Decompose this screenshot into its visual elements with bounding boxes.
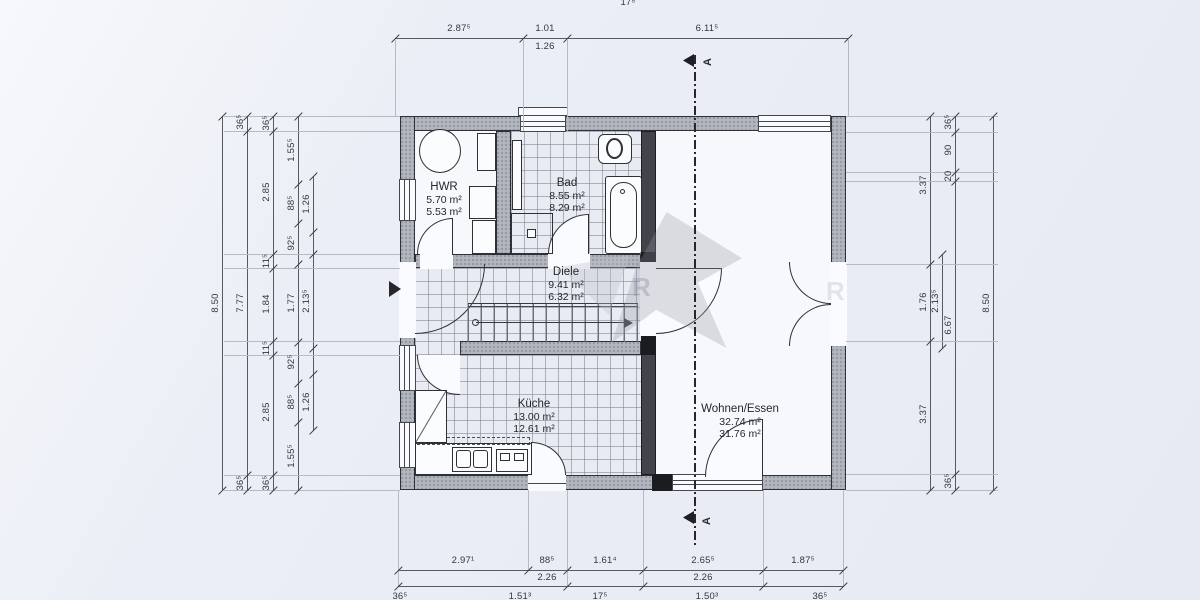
washing-machine: [419, 129, 461, 173]
dimension-line: [273, 116, 274, 490]
extension-line: [224, 490, 400, 491]
extension-line: [846, 172, 998, 173]
dimension-line: [398, 570, 843, 571]
room-name: HWR: [426, 181, 462, 194]
entrance-door-gap: [399, 262, 416, 338]
dim-label: 11⁵: [262, 254, 272, 268]
stair-top-line: [468, 306, 638, 307]
dim-label: 1.50³: [696, 592, 719, 600]
dim-label: 92⁵: [287, 235, 297, 250]
extension-line: [846, 474, 998, 475]
window-frame-line: [404, 345, 405, 391]
dim-label: 36⁵: [392, 592, 407, 600]
dimension-line: [247, 116, 248, 490]
window-frame-line: [672, 484, 763, 485]
dim-label: 1.01: [535, 24, 554, 34]
sink-bowl-right: [473, 450, 488, 468]
extension-line: [846, 132, 998, 133]
dim-label: 2.13⁵: [302, 289, 312, 312]
dim-label: 2.13⁵: [931, 289, 941, 312]
section-flag-bottom: [683, 511, 694, 524]
dim-label: 36⁵: [262, 475, 272, 490]
room-area-net: 5.53 m²: [426, 206, 462, 218]
window-left-kueche-1: [399, 345, 416, 391]
window-frame-line: [409, 179, 410, 221]
section-label-bottom: A: [701, 517, 713, 525]
dimension-line: [398, 586, 843, 587]
section-flag-top: [683, 54, 694, 67]
wall-hwr-bad: [496, 131, 511, 254]
dim-label: 2.87⁵: [447, 24, 470, 34]
extension-line: [848, 40, 849, 116]
sink-bowl-left: [456, 450, 471, 468]
extension-line: [224, 268, 400, 269]
hwr-shelf-1: [477, 133, 496, 171]
door-threshold-line: [528, 483, 566, 484]
dim-label: 90: [944, 145, 954, 156]
shower-drain: [527, 229, 536, 238]
stove-burner-1: [500, 453, 510, 461]
dim-label: 6.11⁵: [696, 24, 719, 34]
french-door-gap-right: [830, 262, 847, 346]
room-name: Diele: [548, 266, 584, 279]
dim-label: 1.84: [262, 294, 272, 313]
dim-label: 17⁵: [592, 592, 607, 600]
floor-plan-page: R R A A HWR 5.70 m² 5.53 m² Bad 8.55 m² …: [0, 0, 1200, 600]
window-frame-line: [672, 480, 763, 481]
window-frame-line: [409, 422, 410, 468]
bathtub-drain: [620, 189, 625, 194]
dim-label: 7.77: [236, 293, 246, 312]
bad-cabinet: [512, 140, 522, 210]
room-area-net: 8.29 m²: [549, 202, 585, 214]
room-label-hwr: HWR 5.70 m² 5.53 m²: [426, 181, 462, 218]
room-name: Bad: [549, 177, 585, 190]
dim-label: 1.26: [535, 42, 554, 52]
room-area-gross: 32.74 m²: [701, 416, 779, 428]
hwr-shelf-2: [469, 186, 496, 219]
dimension-line: [298, 116, 299, 490]
room-area-gross: 13.00 m²: [513, 411, 554, 423]
wall-stub-lower: [641, 336, 656, 355]
dim-label: 36⁵: [236, 114, 246, 129]
dim-label: 6.67: [944, 315, 954, 334]
extension-line: [224, 131, 400, 132]
dim-label: 88⁵: [539, 556, 554, 566]
room-area-net: 31.76 m²: [701, 428, 779, 440]
dim-label: 36⁵: [944, 473, 954, 488]
extension-line: [567, 40, 568, 131]
room-area-gross: 8.55 m²: [549, 190, 585, 202]
room-name: Küche: [513, 398, 554, 411]
dim-label: 36⁵: [262, 115, 272, 130]
room-label-diele: Diele 9.41 m² 6.32 m²: [548, 266, 584, 303]
dim-label: 36⁵: [236, 475, 246, 490]
dim-label: 1.26: [302, 194, 312, 213]
window-frame-line: [520, 121, 566, 122]
toilet-bowl: [606, 138, 623, 159]
room-area-gross: 5.70 m²: [426, 194, 462, 206]
extension-line: [224, 341, 400, 342]
window-frame-line: [520, 126, 566, 127]
stair-walk-start-dot: [472, 319, 479, 326]
window-frame-line: [404, 422, 405, 468]
extension-line: [528, 490, 529, 570]
room-label-kueche: Küche 13.00 m² 12.61 m²: [513, 398, 554, 435]
dim-label: 88⁵: [287, 394, 297, 409]
dim-label: 1.55⁵: [287, 138, 297, 161]
stove-burner-2: [514, 453, 524, 461]
dim-label: 1.77: [287, 293, 297, 312]
room-label-wohnen: Wohnen/Essen 32.74 m² 31.76 m²: [701, 403, 779, 440]
window-sill-top: [518, 107, 568, 116]
window-frame-line: [758, 126, 831, 127]
extension-line: [523, 40, 524, 131]
dim-label: 11⁵: [262, 341, 272, 355]
dim-label: 17⁵: [620, 0, 635, 8]
window-top-wohnen: [758, 115, 831, 132]
dim-label: 2.26: [537, 573, 556, 583]
dim-label: 2.65⁵: [691, 556, 714, 566]
dim-label: 88⁵: [287, 195, 297, 210]
dim-label: 1.76: [919, 292, 929, 311]
window-left-kueche-2: [399, 422, 416, 468]
room-name: Wohnen/Essen: [701, 403, 779, 416]
dim-label: 8.50: [211, 293, 221, 312]
dim-label: 8.50: [982, 293, 992, 312]
section-line: [694, 55, 696, 545]
window-top-bad: [520, 115, 566, 132]
dimension-line: [395, 38, 848, 39]
dim-label: 1.87⁵: [791, 556, 814, 566]
extension-line: [224, 355, 400, 356]
extension-line: [224, 116, 400, 117]
window-frame-line: [758, 121, 831, 122]
dim-label: 2.97¹: [452, 556, 475, 566]
wall-stub-bottom: [652, 474, 672, 491]
dim-label: 2.85: [262, 402, 272, 421]
dim-label: 1.55⁵: [287, 444, 297, 467]
dim-label: 92⁵: [287, 354, 297, 369]
room-area-net: 6.32 m²: [548, 291, 584, 303]
diele-kueche-passage-floor: [415, 341, 460, 355]
extension-line: [846, 490, 998, 491]
wall-diele-kueche: [460, 341, 641, 355]
door-leaf-hwr: [452, 218, 453, 255]
section-label-top: A: [702, 58, 714, 66]
extension-line: [846, 341, 998, 342]
room-area-gross: 9.41 m²: [548, 279, 584, 291]
window-left-hwr: [399, 179, 416, 221]
dimension-line: [222, 116, 223, 490]
dim-label: 1.26: [302, 392, 312, 411]
dim-label: 1.61⁴: [593, 556, 617, 566]
dim-label: 2.26: [693, 573, 712, 583]
dimension-line: [313, 176, 314, 430]
room-label-bad: Bad 8.55 m² 8.29 m²: [549, 177, 585, 214]
dim-label: 3.37: [919, 404, 929, 423]
window-frame-line: [409, 345, 410, 391]
door-leaf-bad: [588, 214, 589, 254]
window-frame-line: [404, 179, 405, 221]
dim-label: 3.37: [919, 175, 929, 194]
dim-label: 36⁵: [944, 114, 954, 129]
extension-line: [846, 116, 998, 117]
dim-label: 36⁵: [812, 592, 827, 600]
stair-walk-line: [476, 322, 626, 323]
extension-line: [395, 40, 396, 116]
dim-label: 1.51³: [509, 592, 532, 600]
door-gap-wohnen: [640, 262, 657, 336]
extension-line: [224, 475, 400, 476]
hwr-shelf-3: [472, 220, 496, 254]
extension-line: [846, 264, 998, 265]
room-area-net: 12.61 m²: [513, 423, 554, 435]
dim-label: 2.85: [262, 182, 272, 201]
kitchen-corner-unit: [415, 390, 447, 443]
dim-label: 20: [944, 171, 954, 182]
outer-wall-bottom: [400, 475, 846, 490]
